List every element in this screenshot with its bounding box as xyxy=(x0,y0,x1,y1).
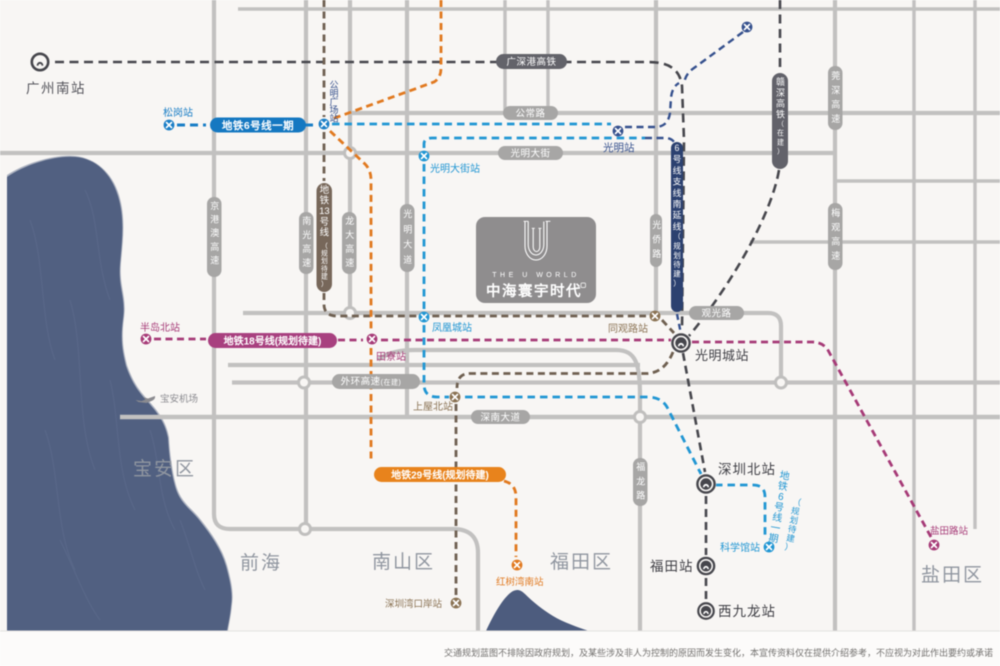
svg-text:地铁18号线(规划待建): 地铁18号线(规划待建) xyxy=(224,335,322,348)
svg-text:科学馆站: 科学馆站 xyxy=(720,541,760,554)
svg-text:南山区: 南山区 xyxy=(372,551,435,573)
svg-text:6号线支线南延线（规划待建）: 6号线支线南延线（规划待建） xyxy=(673,143,682,288)
svg-text:盐田路站: 盐田路站 xyxy=(930,525,969,537)
svg-text:西九龙站: 西九龙站 xyxy=(718,604,776,619)
svg-text:前海: 前海 xyxy=(240,552,282,574)
svg-text:深圳北站: 深圳北站 xyxy=(718,462,776,477)
svg-text:光侨路: 光侨路 xyxy=(652,219,661,259)
svg-text:光明站: 光明站 xyxy=(603,141,635,154)
svg-text:半岛北站: 半岛北站 xyxy=(140,321,180,334)
svg-text:深圳湾口岸站: 深圳湾口岸站 xyxy=(385,598,443,610)
svg-text:凤凰城站: 凤凰城站 xyxy=(432,321,472,334)
svg-text:田寮站: 田寮站 xyxy=(376,350,406,363)
svg-text:宝安机场: 宝安机场 xyxy=(160,393,198,405)
svg-text:公明广场站: 公明广场站 xyxy=(329,80,338,124)
svg-text:上屋北站: 上屋北站 xyxy=(413,400,453,413)
svg-text:盐田区: 盐田区 xyxy=(921,564,984,586)
svg-text:地铁6号线一期: 地铁6号线一期 xyxy=(222,119,294,132)
svg-text:广深港高铁: 广深港高铁 xyxy=(506,56,556,68)
svg-text:福田区: 福田区 xyxy=(550,551,613,573)
svg-text:公常路: 公常路 xyxy=(515,108,545,120)
svg-text:松岗站: 松岗站 xyxy=(163,106,193,119)
svg-text:红树湾南站: 红树湾南站 xyxy=(496,576,544,588)
svg-text:THE U WORLD: THE U WORLD xyxy=(492,272,580,279)
svg-text:中海寰宇时代: 中海寰宇时代 xyxy=(486,282,582,300)
svg-text:赣深高铁（在建）: 赣深高铁（在建） xyxy=(776,76,785,156)
svg-text:福田站: 福田站 xyxy=(650,559,694,574)
svg-text:同观路站: 同观路站 xyxy=(608,322,648,335)
svg-text:深南大道: 深南大道 xyxy=(480,412,520,424)
svg-text:广州南站: 广州南站 xyxy=(26,81,86,96)
svg-text:光明城站: 光明城站 xyxy=(695,348,749,363)
svg-text:京港澳高速: 京港澳高速 xyxy=(210,200,219,265)
svg-text:光明大街站: 光明大街站 xyxy=(430,162,480,175)
svg-text:地铁29号线(规划待建): 地铁29号线(规划待建) xyxy=(391,469,489,482)
svg-text:交通规划蓝图不排除因政府规划，及某些涉及非人为控制的原因而发: 交通规划蓝图不排除因政府规划，及某些涉及非人为控制的原因而发生变化，本宣传资料仅… xyxy=(444,647,993,658)
svg-text:光明大街: 光明大街 xyxy=(510,148,550,160)
svg-text:观光路: 观光路 xyxy=(701,308,731,320)
svg-text:福龙路: 福龙路 xyxy=(636,461,645,501)
svg-text:宝安区: 宝安区 xyxy=(133,458,196,480)
